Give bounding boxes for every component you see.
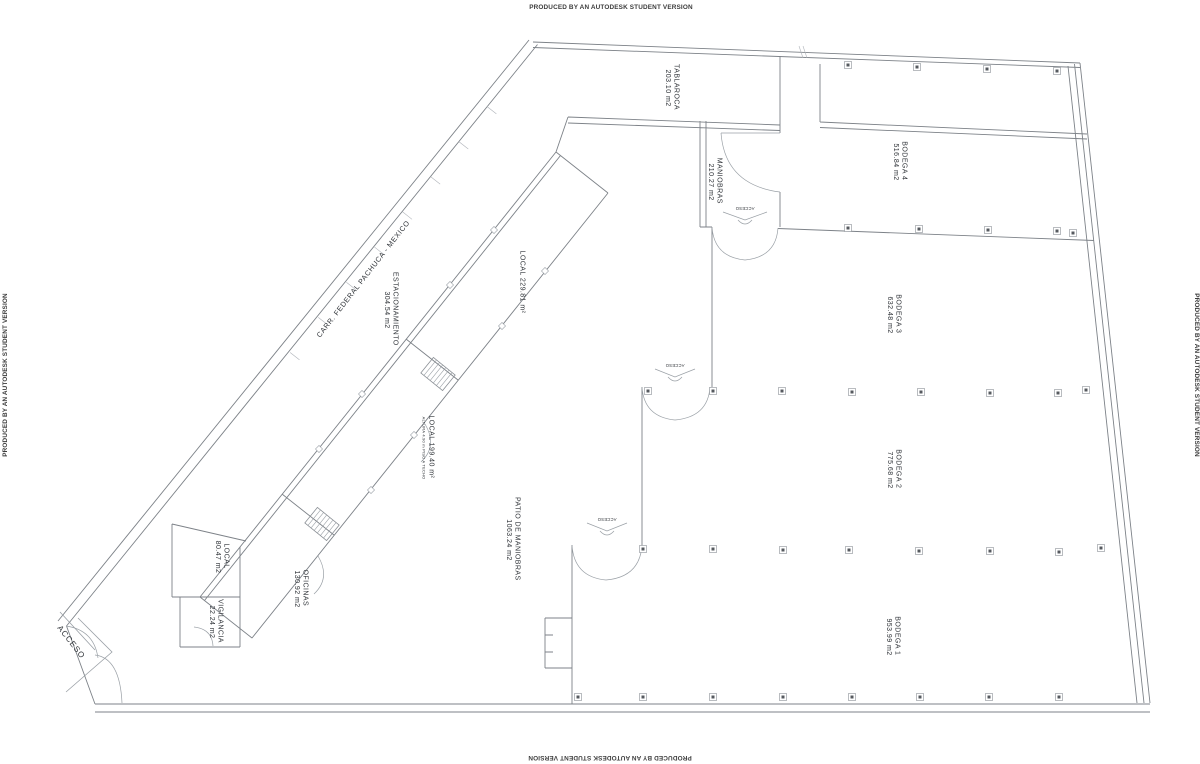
- door-label-bodega-1: ACCESO: [597, 517, 616, 522]
- label-local-80: LOCAL 80.47 m2: [214, 541, 230, 574]
- label-patio: PATIO DE MANIOBRAS 1063.24 m2: [505, 497, 521, 583]
- watermark-left: PRODUCED BY AN AUTODESK STUDENT VERSION: [2, 293, 9, 457]
- door-arrow-icon: [587, 523, 627, 535]
- label-bodega-4: BODEGA 4 516.84 m2: [892, 141, 908, 182]
- door-label-bodega-3: ACCESO: [665, 363, 684, 368]
- watermark-top: PRODUCED BY AN AUTODESK STUDENT VERSION: [529, 4, 693, 11]
- door-arrow-icon: [723, 212, 767, 224]
- door-arrow-icon: [655, 369, 695, 381]
- watermark-right: PRODUCED BY AN AUTODESK STUDENT VERSION: [1193, 293, 1200, 457]
- label-vigilancia: VIGILANCIA 22.24 m2: [208, 599, 224, 645]
- label-oficinas: OFICINAS 130.92 m2: [293, 569, 309, 608]
- label-bodega-2: BODEGA 2 775.68 m2: [886, 449, 902, 490]
- door-label-maniobras: ACCESO: [735, 206, 754, 211]
- floor-plan-canvas: TABLAROCA 203.10 m2 MANIOBRAS 210.27 m2 …: [0, 0, 1200, 764]
- label-estacionamiento: ESTACIONAMIENTO 304.54 m2: [383, 272, 399, 348]
- label-local-229: LOCAL 229.81 m²: [519, 251, 526, 314]
- label-acceso-gate: ACCESO: [55, 624, 87, 661]
- interior-walls: [172, 56, 1094, 704]
- floor-plan-page: TABLAROCA 203.10 m2 MANIOBRAS 210.27 m2 …: [0, 0, 1200, 764]
- label-local-199: LOCAL 199.40 m² ALTURA 4.90 m PISO A TEC…: [422, 415, 435, 480]
- label-tablaroca: TABLAROCA 203.10 m2: [664, 64, 680, 112]
- label-bodega-3: BODEGA 3 632.48 m2: [886, 294, 902, 335]
- column-markers: [575, 62, 1105, 701]
- watermark-bottom: PRODUCED BY AN AUTODESK STUDENT VERSION: [528, 754, 692, 761]
- door-labels: ACCESO ACCESO ACCESO: [587, 206, 767, 535]
- label-bodega-1: BODEGA 1 953.99 m2: [885, 616, 901, 657]
- label-maniobras: MANIOBRAS 210.27 m2: [707, 158, 723, 206]
